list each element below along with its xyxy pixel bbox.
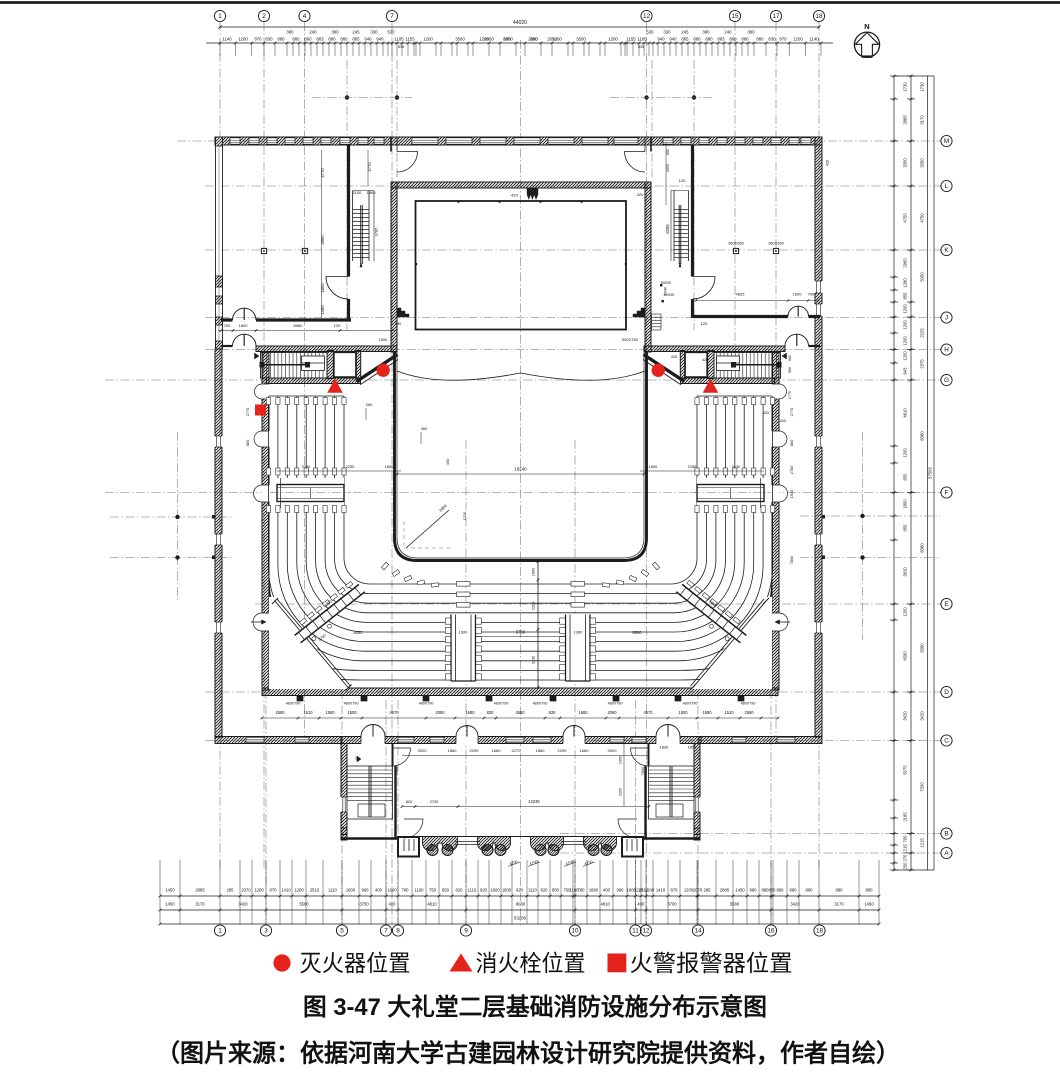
svg-text:270: 270 xyxy=(903,854,908,862)
svg-text:2250: 2250 xyxy=(346,464,355,469)
svg-text:K: K xyxy=(944,247,949,254)
svg-text:530: 530 xyxy=(646,30,654,35)
svg-text:3350: 3350 xyxy=(903,158,908,168)
svg-text:2885: 2885 xyxy=(903,115,908,125)
svg-text:1220: 1220 xyxy=(462,511,467,520)
svg-text:820: 820 xyxy=(541,888,549,893)
svg-text:2090: 2090 xyxy=(435,710,445,715)
svg-text:8285: 8285 xyxy=(665,224,670,234)
svg-text:2770: 2770 xyxy=(789,407,794,416)
svg-text:700: 700 xyxy=(903,835,908,843)
svg-text:2590: 2590 xyxy=(744,710,754,715)
svg-text:1800: 1800 xyxy=(649,464,658,469)
svg-text:1200: 1200 xyxy=(903,448,908,458)
svg-text:1600: 1600 xyxy=(666,164,670,172)
svg-text:8380: 8380 xyxy=(920,643,925,653)
svg-text:17: 17 xyxy=(772,13,780,20)
svg-text:3350: 3350 xyxy=(920,158,925,168)
svg-text:940: 940 xyxy=(669,37,677,42)
svg-text:880: 880 xyxy=(806,888,814,893)
svg-text:780: 780 xyxy=(402,888,410,893)
svg-text:2885: 2885 xyxy=(720,888,730,893)
svg-text:1155: 1155 xyxy=(405,37,415,42)
svg-text:240: 240 xyxy=(724,30,732,35)
svg-text:940: 940 xyxy=(364,37,372,42)
svg-text:3785: 3785 xyxy=(374,227,379,237)
svg-text:1200: 1200 xyxy=(608,37,618,42)
svg-text:2070: 2070 xyxy=(693,888,703,893)
svg-text:3700: 3700 xyxy=(667,902,677,907)
svg-text:1580: 1580 xyxy=(325,710,335,715)
svg-text:420: 420 xyxy=(511,193,518,198)
svg-text:1850: 1850 xyxy=(688,745,697,750)
svg-text:480X790: 480X790 xyxy=(533,702,548,706)
svg-text:1680: 1680 xyxy=(448,748,458,753)
svg-text:2730: 2730 xyxy=(430,799,439,804)
svg-text:960: 960 xyxy=(362,888,370,893)
svg-text:1580: 1580 xyxy=(702,710,712,715)
svg-text:10: 10 xyxy=(571,928,579,935)
svg-text:图 3-47 大礼堂二层基础消防设施分布示意图: 图 3-47 大礼堂二层基础消防设施分布示意图 xyxy=(303,993,767,1021)
svg-text:1950: 1950 xyxy=(619,756,623,764)
svg-text:1540: 1540 xyxy=(789,489,794,498)
svg-text:1730: 1730 xyxy=(903,82,908,92)
svg-text:灭火器位置: 灭火器位置 xyxy=(300,950,411,976)
svg-text:880: 880 xyxy=(769,888,777,893)
svg-text:1300: 1300 xyxy=(459,630,468,635)
svg-text:1000: 1000 xyxy=(379,337,388,342)
svg-text:1200: 1200 xyxy=(238,37,248,42)
svg-text:880: 880 xyxy=(756,37,764,42)
svg-text:880: 880 xyxy=(340,37,348,42)
svg-text:870: 870 xyxy=(671,888,679,893)
svg-text:880: 880 xyxy=(530,37,538,42)
svg-text:2510: 2510 xyxy=(310,888,320,893)
svg-text:3230: 3230 xyxy=(532,656,536,664)
svg-text:1680: 1680 xyxy=(578,710,588,715)
svg-text:330: 330 xyxy=(663,30,671,35)
svg-text:420: 420 xyxy=(826,160,830,166)
svg-text:940: 940 xyxy=(657,37,665,42)
svg-text:1215: 1215 xyxy=(903,844,908,854)
svg-text:285: 285 xyxy=(704,888,712,893)
svg-text:1105: 1105 xyxy=(394,37,404,42)
svg-text:N: N xyxy=(864,22,869,31)
svg-text:380: 380 xyxy=(331,30,339,35)
svg-text:700: 700 xyxy=(808,292,815,297)
svg-text:4590: 4590 xyxy=(903,651,908,661)
svg-text:2780: 2780 xyxy=(789,465,794,474)
svg-text:3420: 3420 xyxy=(238,902,248,907)
svg-text:1680: 1680 xyxy=(387,888,397,893)
svg-text:245: 245 xyxy=(352,30,360,35)
svg-text:880: 880 xyxy=(693,37,701,42)
svg-text:3420: 3420 xyxy=(920,711,925,721)
svg-text:4570: 4570 xyxy=(643,710,653,715)
svg-text:15: 15 xyxy=(731,13,739,20)
svg-text:2090: 2090 xyxy=(607,710,617,715)
svg-text:4750: 4750 xyxy=(920,213,925,223)
svg-text:400: 400 xyxy=(603,888,611,893)
svg-text:4570: 4570 xyxy=(389,710,399,715)
svg-text:3500: 3500 xyxy=(455,37,465,42)
svg-text:260: 260 xyxy=(421,426,428,431)
svg-text:53280: 53280 xyxy=(514,916,527,921)
svg-text:780: 780 xyxy=(578,888,586,893)
svg-text:1500: 1500 xyxy=(347,710,357,715)
svg-text:1200: 1200 xyxy=(903,320,908,330)
svg-text:E: E xyxy=(944,601,948,608)
svg-text:2650: 2650 xyxy=(484,37,494,42)
svg-text:870: 870 xyxy=(270,888,278,893)
svg-text:940: 940 xyxy=(376,37,384,42)
svg-text:1040: 1040 xyxy=(664,287,668,295)
svg-text:1600: 1600 xyxy=(502,888,512,893)
svg-text:1200: 1200 xyxy=(423,37,433,42)
svg-text:400: 400 xyxy=(389,902,397,907)
svg-text:2250: 2250 xyxy=(688,464,697,469)
svg-text:1800: 1800 xyxy=(367,190,377,195)
svg-text:2185: 2185 xyxy=(903,812,908,822)
svg-text:9: 9 xyxy=(464,928,468,935)
svg-text:860: 860 xyxy=(729,37,737,42)
svg-text:820: 820 xyxy=(406,799,413,804)
svg-text:7800: 7800 xyxy=(789,555,794,564)
svg-text:1200: 1200 xyxy=(645,888,655,893)
svg-text:830: 830 xyxy=(549,710,557,715)
svg-text:1110: 1110 xyxy=(328,888,337,893)
svg-text:L: L xyxy=(945,183,949,190)
svg-text:8980: 8980 xyxy=(294,323,304,328)
svg-text:330: 330 xyxy=(370,30,378,35)
svg-text:2650: 2650 xyxy=(547,37,557,42)
svg-text:4750: 4750 xyxy=(903,213,908,223)
svg-text:830: 830 xyxy=(768,37,776,42)
svg-text:2375: 2375 xyxy=(920,359,925,369)
svg-text:120: 120 xyxy=(701,321,708,326)
svg-text:420: 420 xyxy=(780,419,786,423)
svg-text:14: 14 xyxy=(694,928,702,935)
svg-text:260: 260 xyxy=(366,402,373,407)
svg-text:44020: 44020 xyxy=(513,20,527,26)
svg-text:920: 920 xyxy=(516,888,524,893)
svg-text:C: C xyxy=(944,738,949,745)
svg-text:3170: 3170 xyxy=(920,115,925,125)
svg-text:530: 530 xyxy=(387,30,395,35)
svg-text:380: 380 xyxy=(747,30,755,35)
svg-text:1100: 1100 xyxy=(353,190,362,195)
svg-text:820: 820 xyxy=(456,888,464,893)
svg-text:1140: 1140 xyxy=(222,37,232,42)
svg-text:1100: 1100 xyxy=(414,888,424,893)
svg-text:870: 870 xyxy=(254,37,262,42)
svg-text:1200: 1200 xyxy=(903,351,908,361)
svg-text:3810: 3810 xyxy=(903,567,908,577)
svg-text:1450: 1450 xyxy=(864,902,874,907)
svg-text:18: 18 xyxy=(816,928,824,935)
svg-text:J: J xyxy=(945,315,948,322)
svg-text:1450: 1450 xyxy=(735,888,745,893)
svg-text:380: 380 xyxy=(286,30,294,35)
svg-text:1480: 1480 xyxy=(320,305,325,315)
svg-text:3130: 3130 xyxy=(302,464,311,469)
svg-text:8030: 8030 xyxy=(516,902,526,907)
svg-text:3500: 3500 xyxy=(576,37,586,42)
svg-text:1730: 1730 xyxy=(920,82,925,92)
svg-text:1510: 1510 xyxy=(724,710,734,715)
svg-text:830: 830 xyxy=(487,710,495,715)
svg-text:2290: 2290 xyxy=(558,748,568,753)
svg-text:8: 8 xyxy=(396,928,400,935)
svg-text:1: 1 xyxy=(218,13,222,20)
svg-text:880: 880 xyxy=(328,37,336,42)
svg-text:360X360: 360X360 xyxy=(768,241,784,246)
svg-text:1800: 1800 xyxy=(532,568,536,576)
svg-text:2960: 2960 xyxy=(903,258,908,268)
svg-text:M: M xyxy=(944,138,949,145)
svg-text:1200: 1200 xyxy=(903,336,908,346)
svg-text:850: 850 xyxy=(552,888,560,893)
svg-text:1215: 1215 xyxy=(920,838,925,848)
svg-text:3: 3 xyxy=(264,928,268,935)
svg-text:5580: 5580 xyxy=(730,902,740,907)
svg-text:4: 4 xyxy=(303,13,307,20)
svg-text:3170: 3170 xyxy=(834,902,844,907)
svg-text:420: 420 xyxy=(671,355,677,359)
svg-text:1200: 1200 xyxy=(254,888,264,893)
svg-text:7: 7 xyxy=(390,13,394,20)
svg-text:380: 380 xyxy=(702,30,710,35)
svg-text:12: 12 xyxy=(642,928,650,935)
svg-text:360X360: 360X360 xyxy=(728,241,744,246)
svg-text:960: 960 xyxy=(788,355,792,361)
svg-text:1110: 1110 xyxy=(468,888,477,893)
svg-text:870: 870 xyxy=(779,37,787,42)
svg-text:（图片来源：依据河南大学古建园林设计研究院提供资料，作者自绘: （图片来源：依据河南大学古建园林设计研究院提供资料，作者自绘） xyxy=(156,1040,900,1068)
svg-text:865: 865 xyxy=(352,37,360,42)
svg-text:250: 250 xyxy=(903,862,908,870)
svg-text:8060: 8060 xyxy=(632,630,642,635)
svg-text:480X790: 480X790 xyxy=(344,702,359,706)
svg-text:2270: 2270 xyxy=(512,748,522,753)
svg-text:120: 120 xyxy=(679,178,686,183)
svg-text:5075: 5075 xyxy=(903,765,908,775)
svg-text:943: 943 xyxy=(903,367,908,375)
svg-text:1200: 1200 xyxy=(793,37,803,42)
svg-text:火警报警器位置: 火警报警器位置 xyxy=(630,950,793,976)
svg-text:3920: 3920 xyxy=(608,748,618,753)
svg-text:750: 750 xyxy=(429,888,437,893)
svg-text:2290: 2290 xyxy=(470,748,480,753)
svg-text:820X750: 820X750 xyxy=(622,337,638,342)
svg-text:1200: 1200 xyxy=(294,888,304,893)
svg-text:120: 120 xyxy=(334,323,341,328)
svg-text:6760: 6760 xyxy=(516,630,526,635)
svg-text:3170: 3170 xyxy=(195,902,205,907)
svg-text:5050: 5050 xyxy=(920,272,925,282)
svg-text:880: 880 xyxy=(866,888,874,893)
svg-text:1600: 1600 xyxy=(346,888,356,893)
svg-text:2885: 2885 xyxy=(195,888,205,893)
svg-text:850: 850 xyxy=(903,473,908,481)
svg-text:700: 700 xyxy=(224,323,231,328)
svg-text:860: 860 xyxy=(245,439,250,446)
svg-text:830: 830 xyxy=(265,37,273,42)
svg-text:4770: 4770 xyxy=(320,168,325,178)
svg-text:960: 960 xyxy=(617,888,625,893)
svg-text:2: 2 xyxy=(262,13,266,20)
svg-text:480X790: 480X790 xyxy=(608,702,623,706)
svg-text:420: 420 xyxy=(637,192,644,197)
svg-text:1800: 1800 xyxy=(320,283,325,293)
svg-text:F: F xyxy=(945,490,949,497)
svg-text:G: G xyxy=(944,377,949,384)
svg-text:1450: 1450 xyxy=(165,888,175,893)
svg-text:535: 535 xyxy=(398,45,404,49)
svg-text:1410: 1410 xyxy=(656,888,666,893)
svg-text:880: 880 xyxy=(277,37,285,42)
svg-text:4835: 4835 xyxy=(736,292,746,297)
svg-text:3920: 3920 xyxy=(418,748,428,753)
svg-text:5: 5 xyxy=(340,928,344,935)
svg-text:4810: 4810 xyxy=(427,902,437,907)
svg-text:920: 920 xyxy=(480,888,488,893)
svg-text:11: 11 xyxy=(632,928,639,935)
svg-text:880: 880 xyxy=(790,888,798,893)
svg-text:2070: 2070 xyxy=(241,888,251,893)
svg-text:3420: 3420 xyxy=(790,902,800,907)
svg-text:1830: 1830 xyxy=(660,745,669,750)
svg-text:消火栓位置: 消火栓位置 xyxy=(476,950,586,976)
svg-text:12230: 12230 xyxy=(528,799,540,804)
svg-text:880: 880 xyxy=(503,37,511,42)
svg-text:8380: 8380 xyxy=(920,543,925,553)
svg-text:850: 850 xyxy=(903,524,908,532)
svg-text:420: 420 xyxy=(702,358,708,362)
svg-text:245: 245 xyxy=(681,30,689,35)
svg-text:2250: 2250 xyxy=(532,602,536,610)
svg-text:400: 400 xyxy=(637,902,645,907)
svg-text:1300: 1300 xyxy=(574,630,583,635)
svg-text:480X790: 480X790 xyxy=(286,702,301,706)
svg-text:480X790: 480X790 xyxy=(494,702,509,706)
svg-text:865: 865 xyxy=(681,37,689,42)
svg-text:1680: 1680 xyxy=(589,888,599,893)
svg-text:883: 883 xyxy=(316,37,324,42)
svg-text:2000: 2000 xyxy=(619,788,623,796)
svg-text:1410: 1410 xyxy=(281,888,291,893)
svg-text:950: 950 xyxy=(666,149,670,155)
svg-text:480X790: 480X790 xyxy=(683,702,698,706)
svg-text:450: 450 xyxy=(445,458,450,465)
svg-text:4810: 4810 xyxy=(601,902,611,907)
svg-text:H: H xyxy=(944,347,949,354)
svg-text:4860: 4860 xyxy=(320,235,325,245)
svg-text:280: 280 xyxy=(395,321,402,326)
svg-text:18: 18 xyxy=(815,13,823,20)
svg-text:1110: 1110 xyxy=(528,888,537,893)
svg-text:1800: 1800 xyxy=(385,464,394,469)
svg-text:8380: 8380 xyxy=(920,431,925,441)
svg-text:1680: 1680 xyxy=(465,710,475,715)
svg-text:420: 420 xyxy=(763,411,769,415)
svg-text:2770: 2770 xyxy=(245,407,250,416)
svg-text:1140: 1140 xyxy=(809,37,819,42)
svg-text:4810: 4810 xyxy=(903,408,908,418)
svg-text:1: 1 xyxy=(218,928,222,935)
svg-text:1800: 1800 xyxy=(239,323,249,328)
svg-text:1155: 1155 xyxy=(626,37,636,42)
svg-text:535: 535 xyxy=(638,45,644,49)
svg-text:3420: 3420 xyxy=(903,711,908,721)
svg-text:18240: 18240 xyxy=(514,467,527,472)
svg-text:880: 880 xyxy=(836,888,844,893)
svg-text:850: 850 xyxy=(442,888,450,893)
svg-text:7: 7 xyxy=(384,928,388,935)
svg-text:4580: 4580 xyxy=(515,710,525,715)
svg-text:1680: 1680 xyxy=(580,748,590,753)
svg-text:1600: 1600 xyxy=(490,888,500,893)
svg-text:2590: 2590 xyxy=(275,710,285,715)
svg-text:1200: 1200 xyxy=(903,304,908,314)
svg-text:1500: 1500 xyxy=(678,710,688,715)
svg-text:400: 400 xyxy=(375,888,383,893)
svg-text:883: 883 xyxy=(717,37,725,42)
svg-text:1800: 1800 xyxy=(903,499,908,509)
svg-text:1510: 1510 xyxy=(303,710,313,715)
svg-text:1105: 1105 xyxy=(637,37,647,42)
svg-text:5580: 5580 xyxy=(299,902,309,907)
svg-text:860: 860 xyxy=(789,439,794,446)
svg-text:880: 880 xyxy=(292,37,300,42)
svg-text:960: 960 xyxy=(788,367,792,373)
svg-text:285: 285 xyxy=(227,888,235,893)
svg-text:3130: 3130 xyxy=(732,464,741,469)
svg-text:1680: 1680 xyxy=(492,748,502,753)
svg-text:8080: 8080 xyxy=(353,630,363,635)
svg-text:1200: 1200 xyxy=(903,607,908,617)
svg-text:880: 880 xyxy=(750,888,758,893)
svg-text:A: A xyxy=(944,850,949,857)
svg-text:2225: 2225 xyxy=(920,328,925,338)
svg-text:850: 850 xyxy=(903,292,908,300)
svg-text:1280: 1280 xyxy=(903,278,908,288)
svg-text:880: 880 xyxy=(741,37,749,42)
svg-text:7200: 7200 xyxy=(920,782,925,792)
svg-text:B: B xyxy=(944,831,948,838)
svg-text:16: 16 xyxy=(767,928,775,935)
svg-text:12: 12 xyxy=(643,13,651,20)
svg-text:240: 240 xyxy=(309,30,317,35)
svg-text:1600: 1600 xyxy=(793,292,803,297)
svg-text:880: 880 xyxy=(705,37,713,42)
svg-text:1680: 1680 xyxy=(536,748,546,753)
svg-text:480X790: 480X790 xyxy=(741,702,756,706)
svg-text:D: D xyxy=(944,689,949,696)
svg-text:1770: 1770 xyxy=(788,391,792,399)
svg-text:480X790: 480X790 xyxy=(419,702,434,706)
svg-text:3700: 3700 xyxy=(359,902,369,907)
svg-text:1450: 1450 xyxy=(165,902,175,907)
svg-text:880: 880 xyxy=(777,888,785,893)
svg-text:860: 860 xyxy=(304,37,312,42)
svg-text:57505: 57505 xyxy=(928,467,933,479)
